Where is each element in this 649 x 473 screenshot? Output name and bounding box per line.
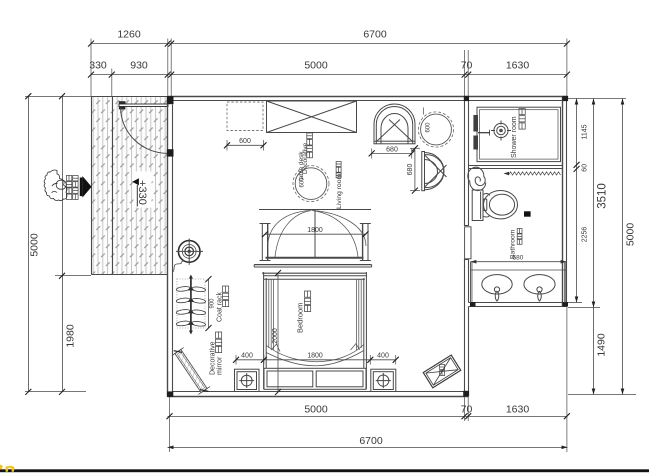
svg-text:600: 600 [239,138,251,145]
svg-text:60: 60 [582,164,589,172]
svg-text:5000: 5000 [625,223,637,247]
svg-text:1630: 1630 [506,60,530,72]
svg-text:6700: 6700 [359,435,383,447]
svg-text:930: 930 [130,60,148,72]
svg-text:680: 680 [407,164,414,176]
svg-text:600: 600 [426,122,432,133]
svg-text:70: 70 [461,404,473,416]
svg-text:table desk: table desk [298,151,305,181]
svg-text:900: 900 [210,298,216,309]
svg-text:5000: 5000 [29,233,41,257]
svg-text:Shower room: Shower room [511,116,518,158]
svg-text:1490: 1490 [596,333,608,357]
svg-text:1800: 1800 [307,353,323,360]
svg-text:5000: 5000 [304,404,328,416]
svg-text:Bedroom: Bedroom [296,303,305,333]
svg-text:1260: 1260 [117,29,141,41]
svg-text:Coat rack: Coat rack [217,292,224,322]
svg-text:400: 400 [377,353,389,360]
svg-text:330: 330 [89,60,107,72]
svg-text:6700: 6700 [363,29,387,41]
svg-text:1800: 1800 [307,227,323,234]
svg-text:2000: 2000 [272,328,279,344]
svg-text:2256: 2256 [582,227,589,243]
svg-text:400: 400 [241,353,253,360]
svg-text:+330: +330 [136,180,148,205]
svg-text:mirror: mirror [217,356,224,375]
svg-text:3510: 3510 [597,183,609,209]
svg-text:Decorative: Decorative [210,341,217,375]
svg-text:5000: 5000 [304,60,328,72]
svg-text:Living room: Living room [336,174,343,209]
svg-text:600: 600 [300,177,306,188]
svg-text:70: 70 [461,60,473,72]
svg-text:680: 680 [386,146,398,153]
svg-text:1145: 1145 [582,124,589,139]
svg-text:1630: 1630 [506,404,530,416]
svg-text:1980: 1980 [65,324,77,348]
svg-text:580: 580 [513,254,524,261]
